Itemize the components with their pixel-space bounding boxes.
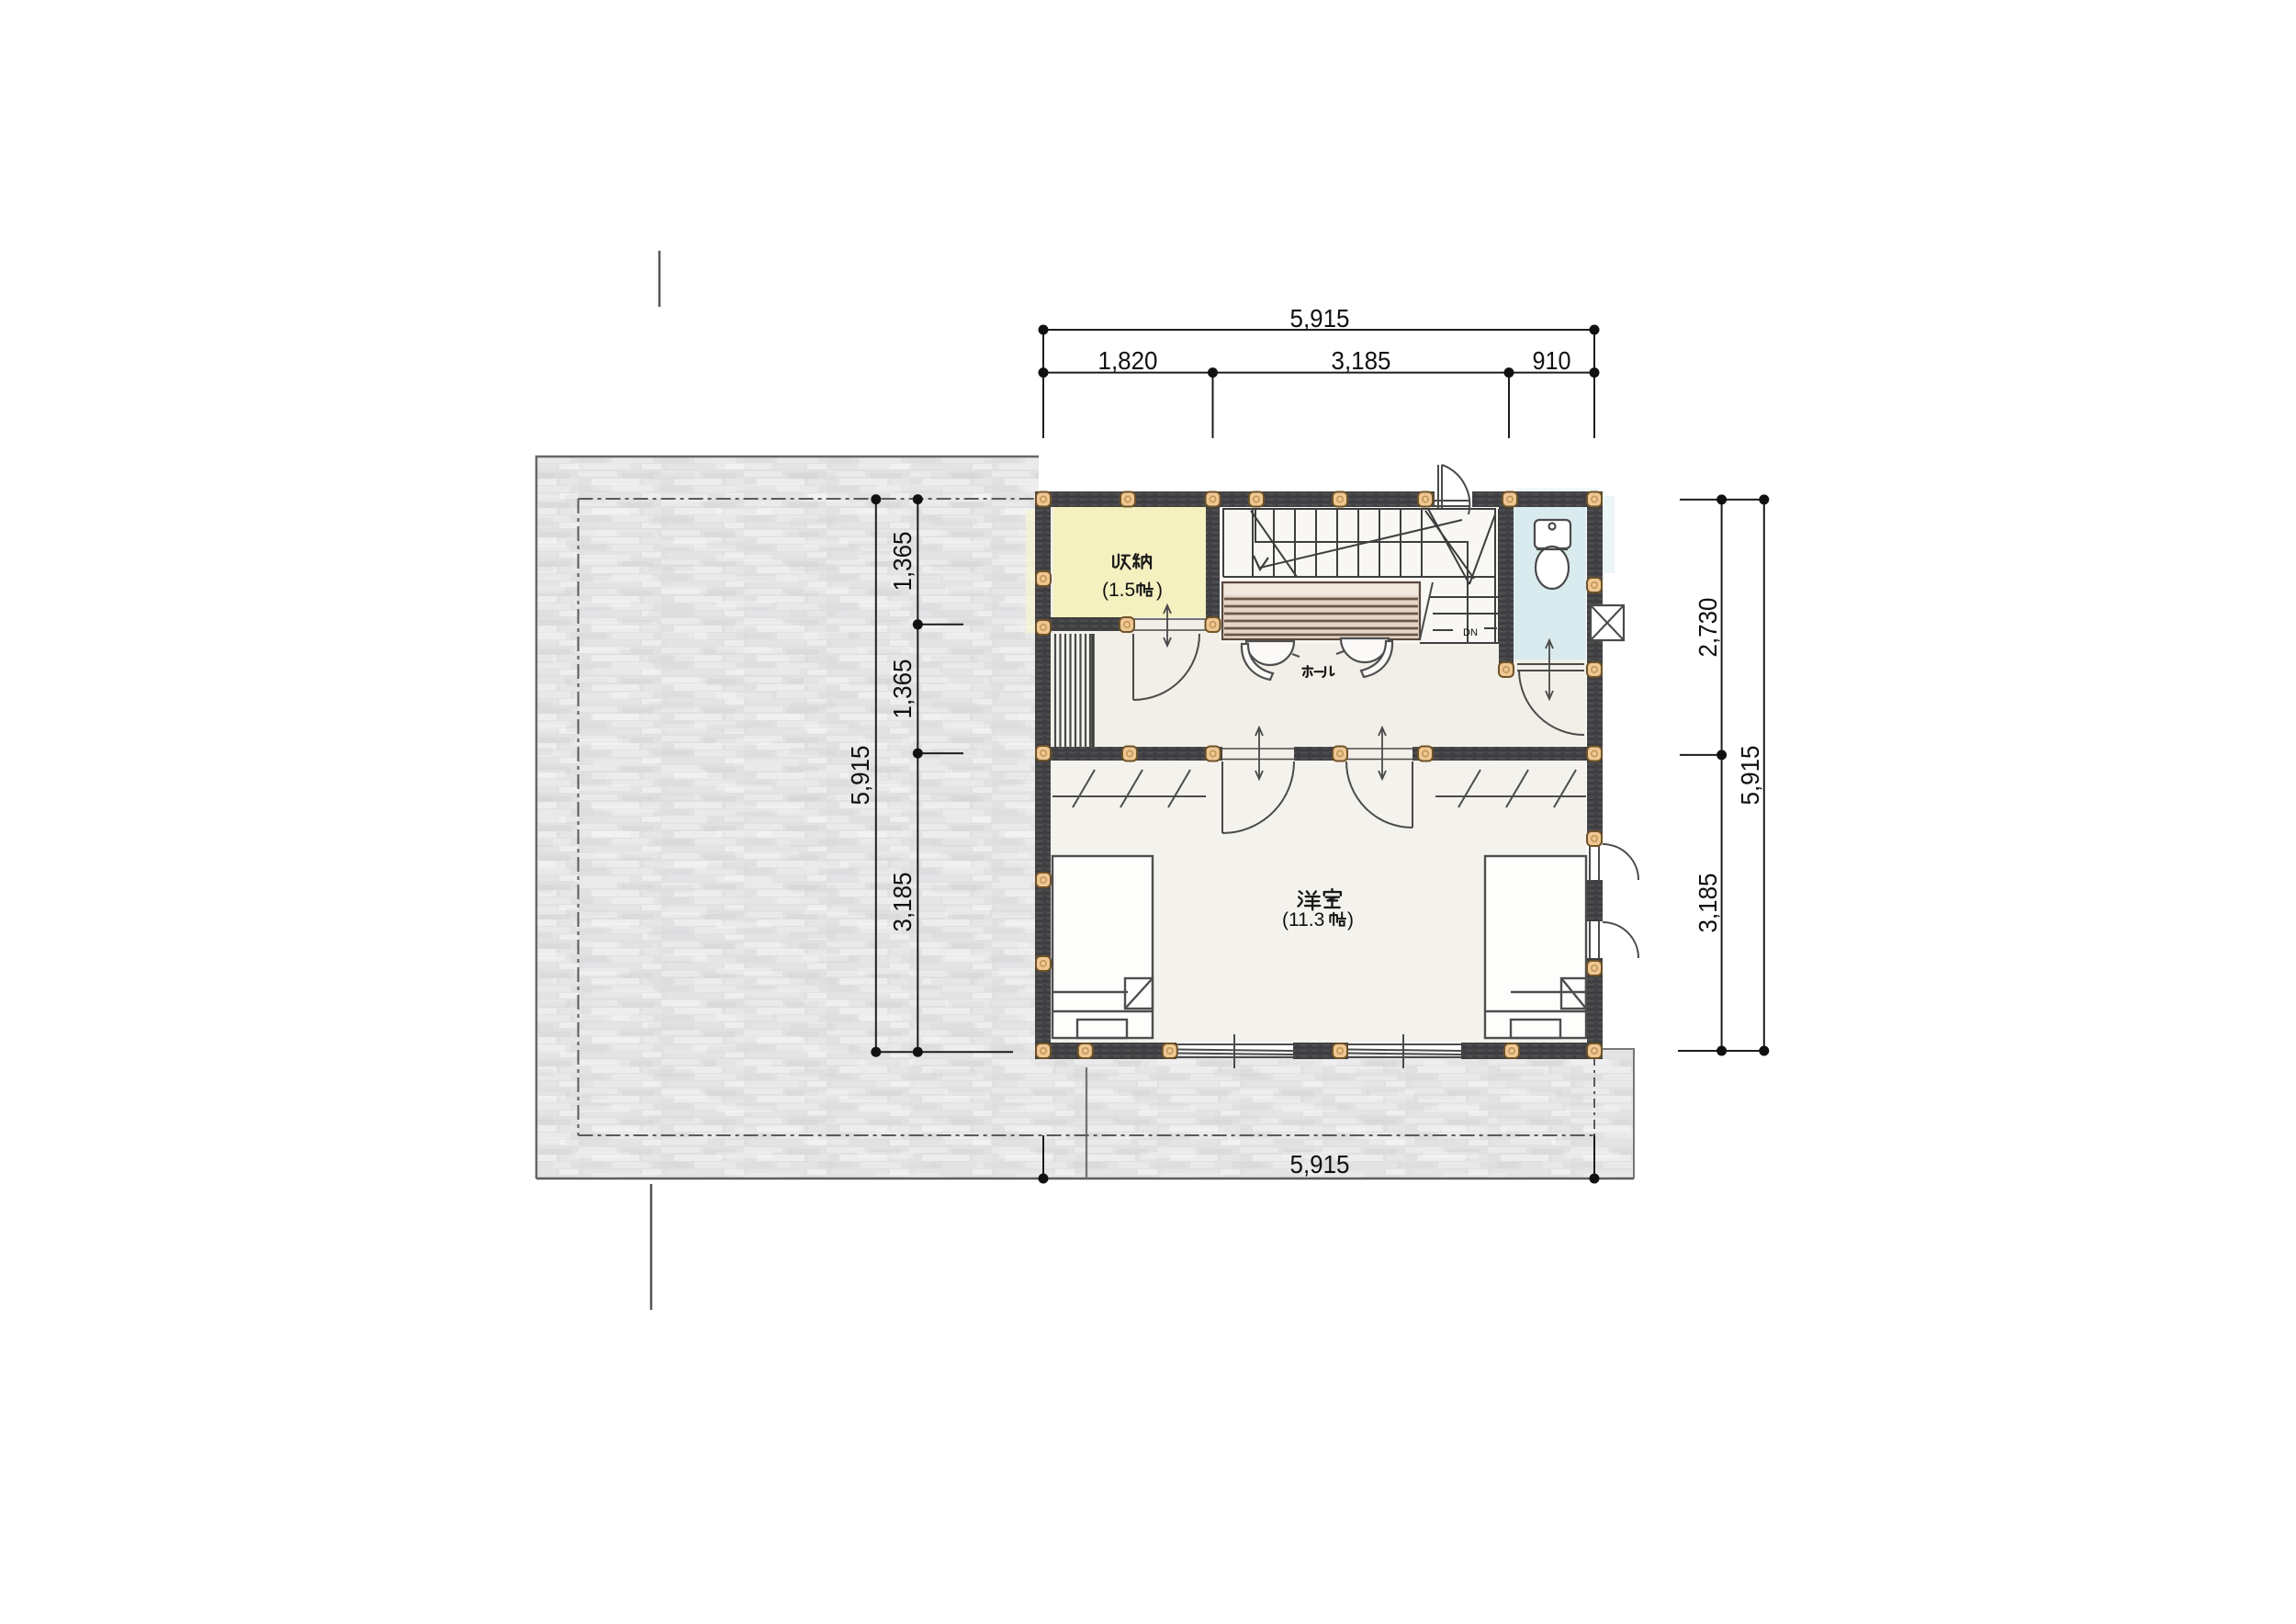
- svg-text:910: 910: [1533, 346, 1571, 375]
- svg-text:3,185: 3,185: [888, 873, 917, 932]
- svg-text:5,915: 5,915: [1290, 304, 1350, 333]
- svg-text:): ): [1156, 580, 1163, 601]
- svg-text:DN: DN: [1463, 627, 1478, 638]
- svg-text:3,185: 3,185: [1694, 874, 1722, 933]
- svg-text:(11.3: (11.3: [1282, 909, 1324, 930]
- svg-text:3,185: 3,185: [1332, 346, 1391, 375]
- svg-text:1,365: 1,365: [888, 532, 917, 592]
- svg-text:2,730: 2,730: [1694, 598, 1722, 658]
- svg-text:): ): [1347, 909, 1354, 930]
- svg-text:1,365: 1,365: [888, 660, 917, 719]
- svg-text:5,915: 5,915: [1736, 746, 1764, 806]
- svg-text:1,820: 1,820: [1098, 346, 1158, 375]
- svg-text:5,915: 5,915: [846, 746, 874, 806]
- svg-text:5,915: 5,915: [1290, 1150, 1350, 1179]
- svg-text:(1.5: (1.5: [1102, 580, 1135, 601]
